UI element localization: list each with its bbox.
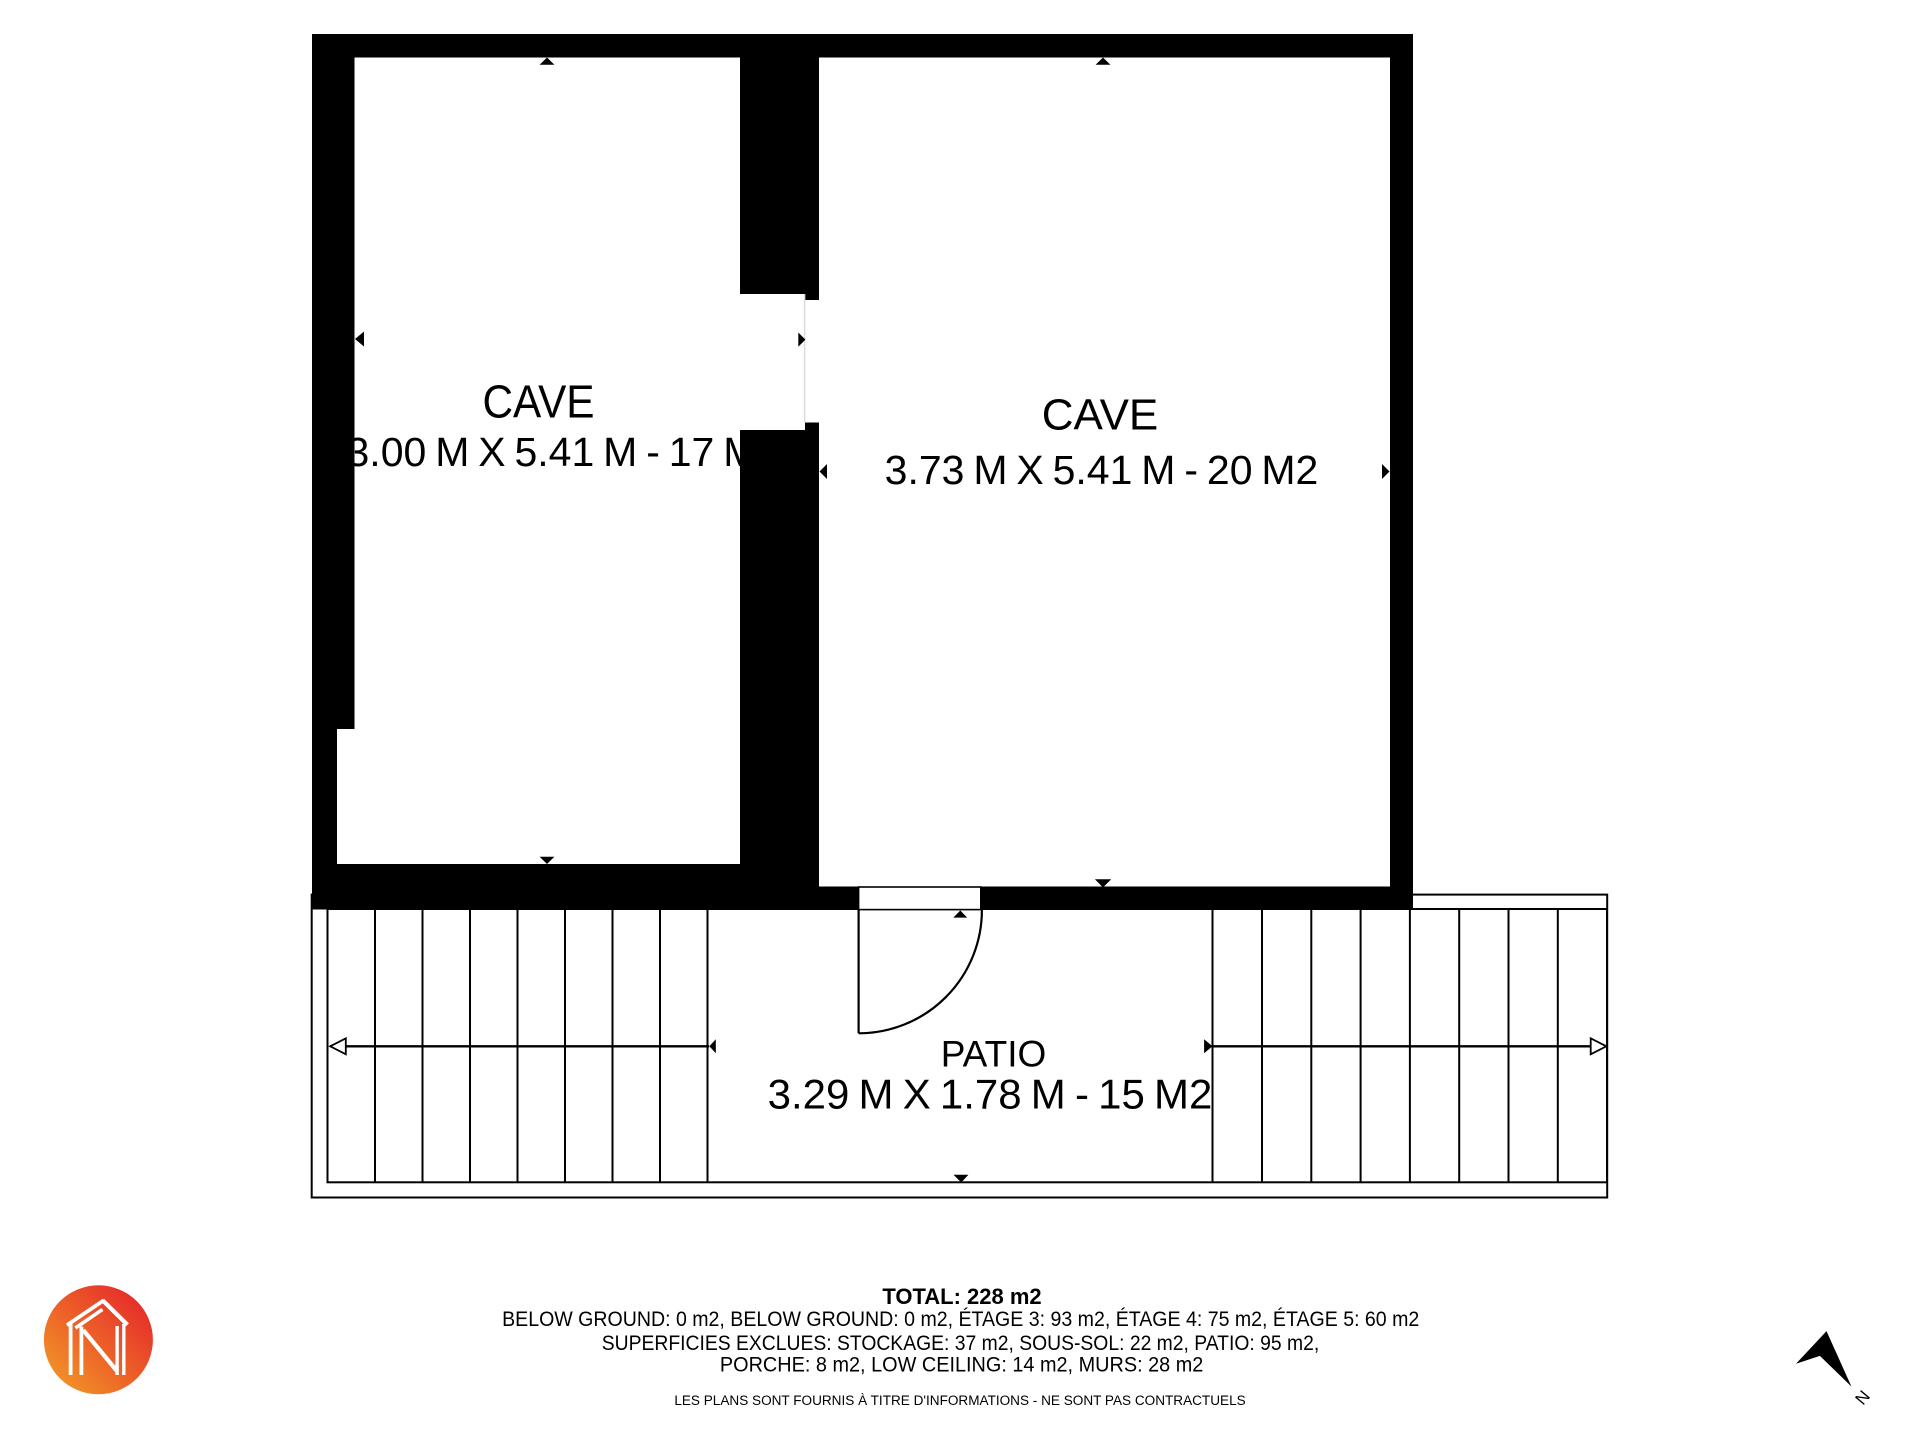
svg-text:N: N (1852, 1387, 1874, 1409)
svg-text:SUPERFICIES EXCLUES: STOCKAGE:: SUPERFICIES EXCLUES: STOCKAGE: 37 m2, SO… (602, 1332, 1319, 1355)
svg-text:TOTAL: 228 m2: TOTAL: 228 m2 (882, 1284, 1041, 1309)
svg-text:3.29 M X 1.78 M - 15 M2: 3.29 M X 1.78 M - 15 M2 (768, 1070, 1213, 1117)
svg-text:BELOW GROUND: 0 m2, BELOW GROU: BELOW GROUND: 0 m2, BELOW GROUND: 0 m2, … (502, 1307, 1419, 1331)
svg-text:LES PLANS SONT FOURNIS À TITRE: LES PLANS SONT FOURNIS À TITRE D'INFORMA… (674, 1392, 1245, 1408)
svg-text:3.73 M X 5.41 M - 20 M2: 3.73 M X 5.41 M - 20 M2 (885, 447, 1319, 493)
svg-text:PORCHE: 8 m2, LOW CEILING: 14: PORCHE: 8 m2, LOW CEILING: 14 m2, MURS: … (720, 1353, 1203, 1377)
svg-text:3.00 M X 5.41 M - 17 M2: 3.00 M X 5.41 M - 17 M2 (347, 429, 781, 475)
svg-text:CAVE: CAVE (482, 377, 594, 428)
svg-text:CAVE: CAVE (1042, 391, 1159, 440)
svg-text:PATIO: PATIO (941, 1033, 1047, 1074)
